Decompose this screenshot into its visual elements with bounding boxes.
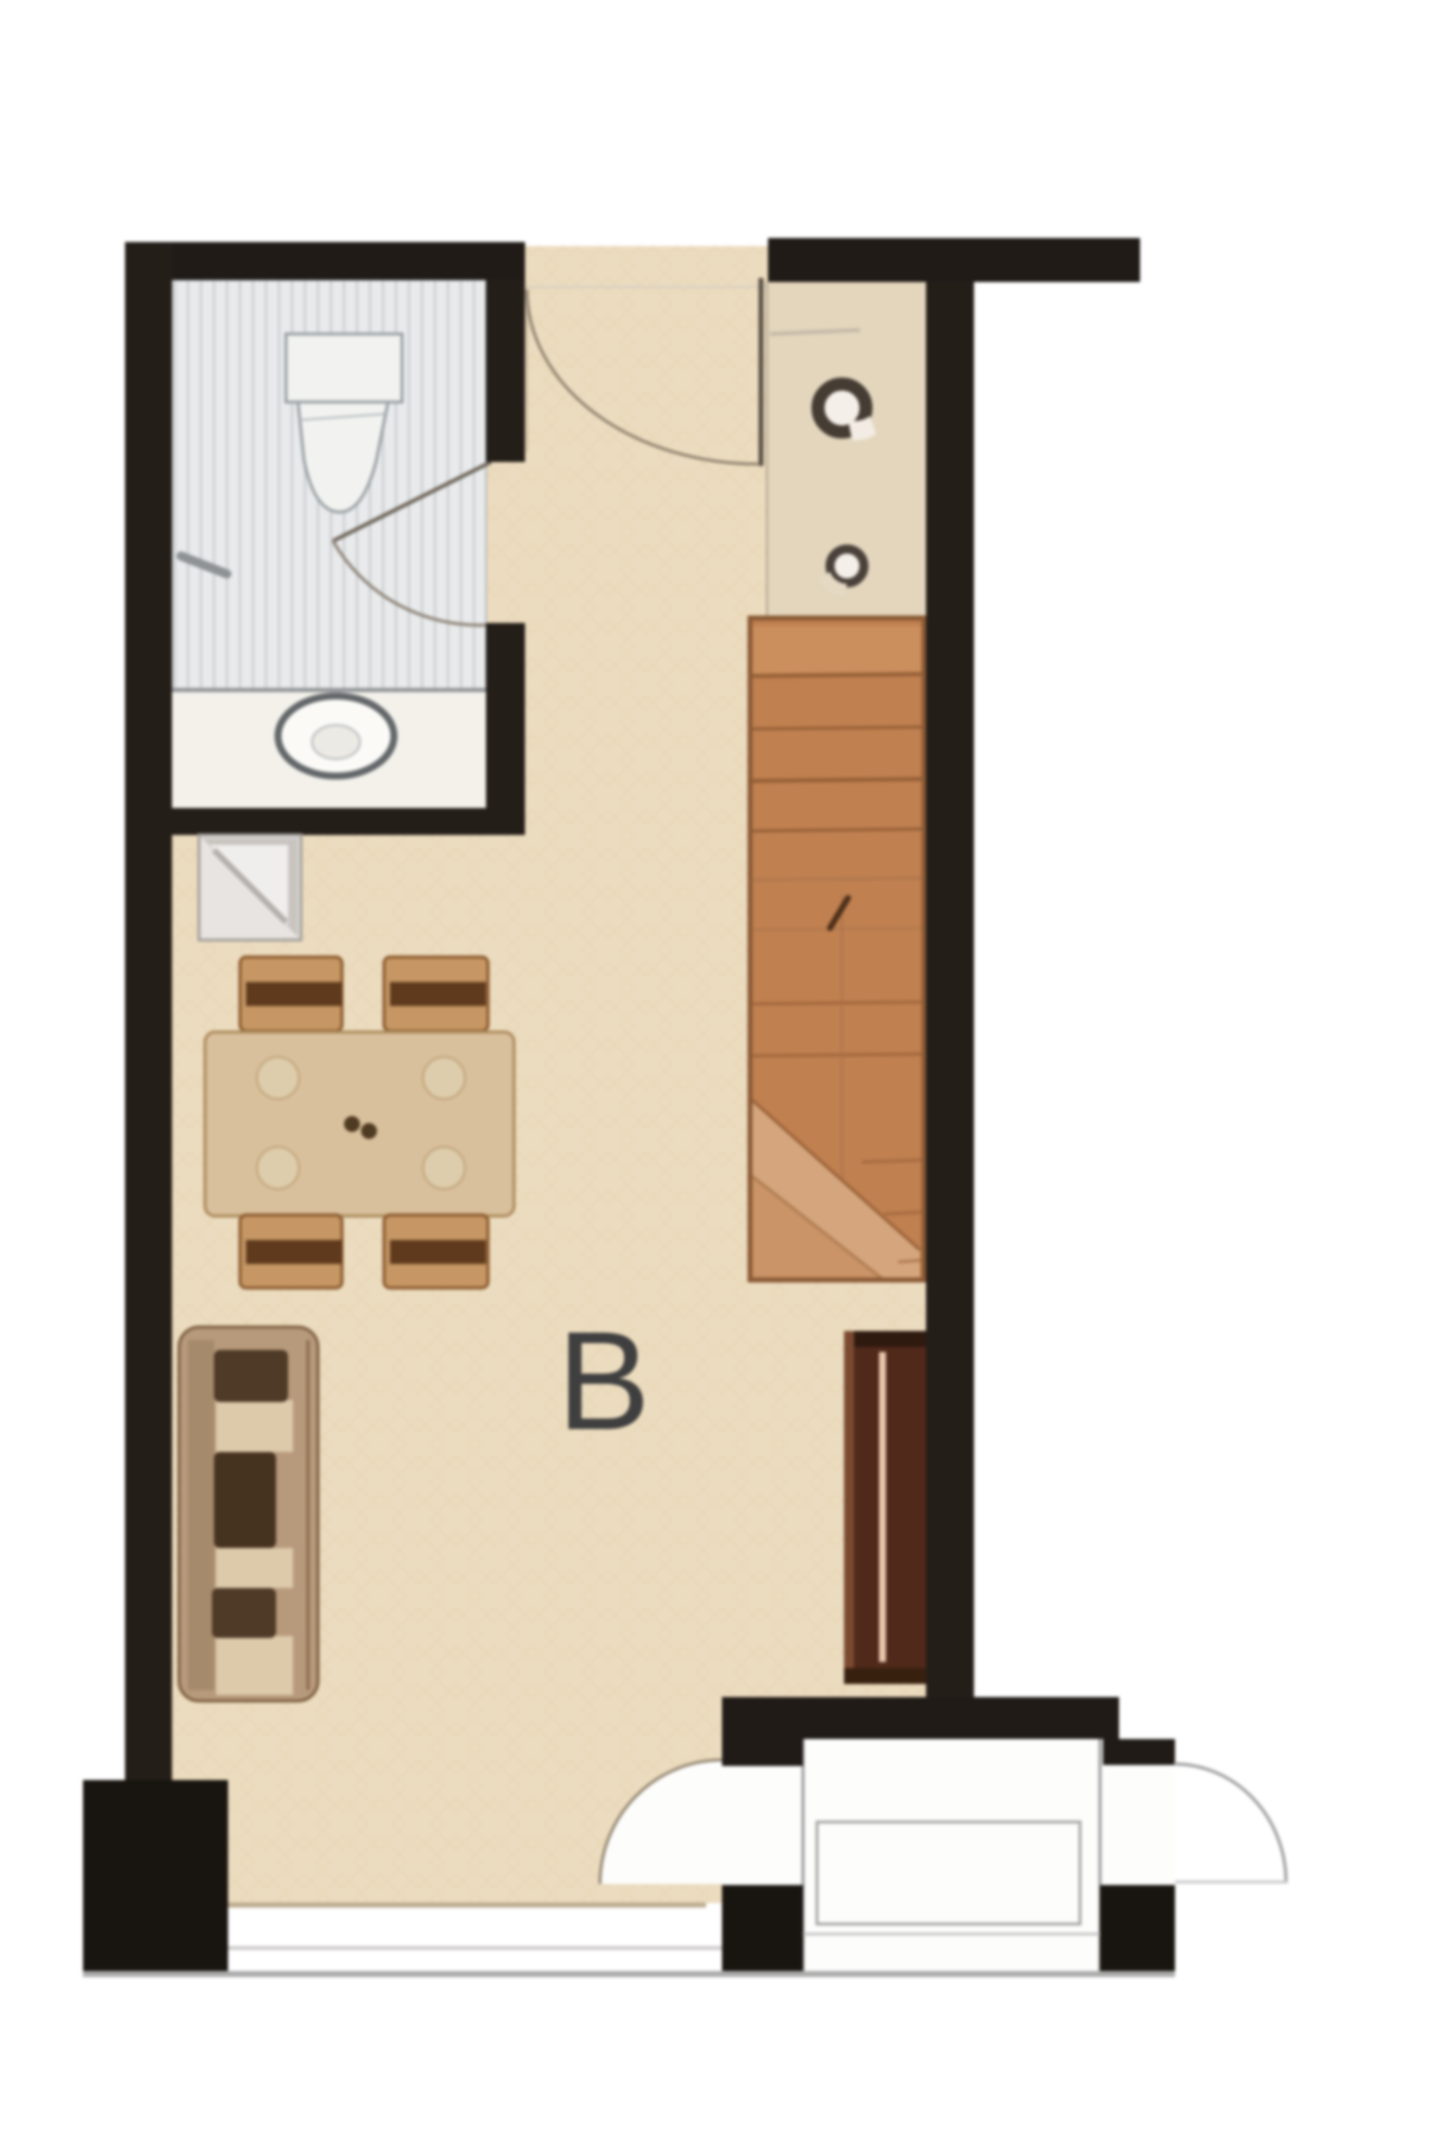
svg-text:B: B [557, 1302, 650, 1459]
